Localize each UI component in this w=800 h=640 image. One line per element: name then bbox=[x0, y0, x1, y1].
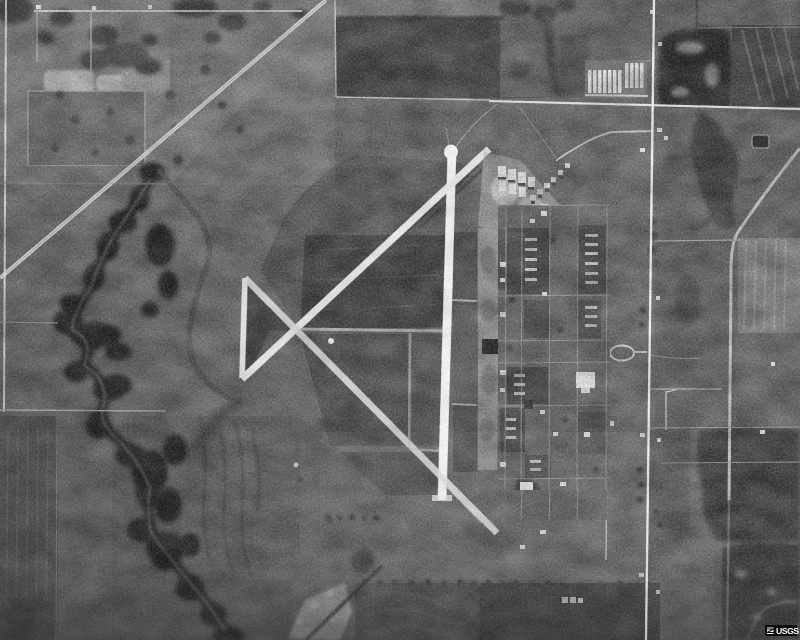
svg-text:USGS: USGS bbox=[776, 626, 799, 636]
